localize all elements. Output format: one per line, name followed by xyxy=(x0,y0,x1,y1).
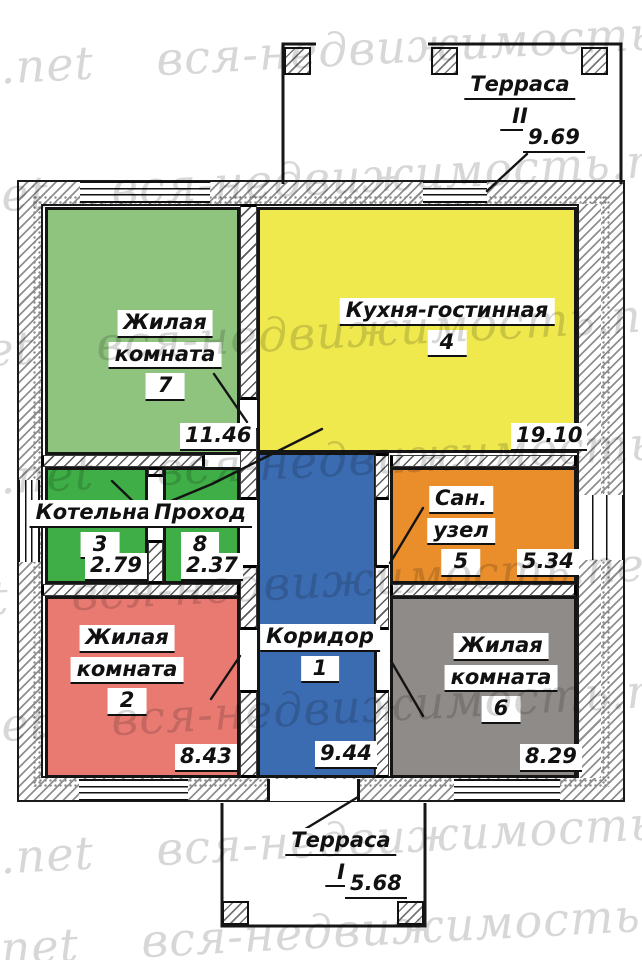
area-terrace-1: 5.68 xyxy=(345,871,407,899)
terrace-name: Терраса xyxy=(285,828,396,856)
label-room-bathroom-5: Сан. узел 5 xyxy=(427,486,495,581)
door-corridor-terrace-1 xyxy=(267,779,360,801)
room-number: 2 xyxy=(108,688,147,716)
room-name-line: Жилая xyxy=(79,625,174,653)
wall-room7-boiler xyxy=(41,455,205,467)
label-room-living-2: Жилая комната 2 xyxy=(71,625,184,720)
room-name-line: Сан. xyxy=(429,486,493,514)
wall-bathroom-room6 xyxy=(390,584,577,596)
label-room-living-6: Жилая комната 6 xyxy=(445,633,558,728)
wall-room7-kitchen-upper xyxy=(240,204,257,400)
room-name-line: узел xyxy=(427,518,495,546)
floor-plan: Жилая комната 7 Кухня-гостинная 4 Котель… xyxy=(0,0,642,960)
room-name-line: Жилая xyxy=(117,310,212,338)
window-right-bathroom xyxy=(577,495,624,560)
room-name-line: комната xyxy=(445,665,558,693)
area-room-living-2: 8.43 xyxy=(175,744,237,772)
room-name-line: комната xyxy=(71,657,184,685)
window-top-room7 xyxy=(80,181,210,203)
room-name-line: Кухня-гостинная xyxy=(340,298,555,326)
area-terrace-2: 9.69 xyxy=(523,125,585,153)
room-number: 6 xyxy=(482,696,521,724)
room-name-line: Жилая xyxy=(453,633,548,661)
window-bottom-room2 xyxy=(79,779,188,801)
room-number: 7 xyxy=(146,373,185,401)
wall-kitchen-bathroom xyxy=(390,455,577,467)
wall-corridor-room6-lower xyxy=(375,690,389,778)
area-room-corridor-1: 9.44 xyxy=(315,741,377,769)
area-room-bathroom-5: 5.34 xyxy=(517,549,579,577)
terrace-2-pillar-left xyxy=(284,47,311,75)
terrace-1-pillar-right xyxy=(397,901,424,925)
room-name-line: комната xyxy=(109,342,222,370)
room-number: 1 xyxy=(301,656,340,684)
wall-boiler-room2 xyxy=(41,584,240,596)
terrace-1-pillar-left xyxy=(222,901,249,925)
area-room-kitchen-4: 19.10 xyxy=(511,423,587,451)
terrace-2-pillar-mid xyxy=(431,47,458,75)
room-name-line: Коридор xyxy=(260,624,380,652)
window-door-terrace-2 xyxy=(423,181,487,203)
wall-boiler-passage-jamb xyxy=(148,467,163,477)
area-room-boiler-3: 2.79 xyxy=(85,553,147,581)
wall-room2-corridor-lower xyxy=(240,690,257,778)
wall-insulation-right xyxy=(601,195,610,787)
inner-wall-right-band xyxy=(577,204,601,778)
window-bottom-room6 xyxy=(454,779,560,801)
room-name-line: Проход xyxy=(148,500,252,528)
room-number: 5 xyxy=(442,549,481,577)
area-room-living-6: 8.29 xyxy=(520,744,582,772)
room-corridor-1 xyxy=(257,453,377,778)
room-number: 4 xyxy=(428,330,467,358)
wall-corridor-bathroom-upper xyxy=(375,453,389,500)
terrace-2-pillar-right xyxy=(581,47,608,75)
label-room-kitchen-4: Кухня-гостинная 4 xyxy=(340,298,555,361)
terrace-name: Терраса xyxy=(464,72,575,100)
label-room-living-7: Жилая комната 7 xyxy=(109,310,222,405)
area-room-passage-8: 2.37 xyxy=(181,553,243,581)
wall-corridor-room6-upper xyxy=(375,565,389,630)
area-room-living-7: 11.46 xyxy=(180,423,256,451)
label-room-corridor-1: Коридор 1 xyxy=(260,624,380,687)
